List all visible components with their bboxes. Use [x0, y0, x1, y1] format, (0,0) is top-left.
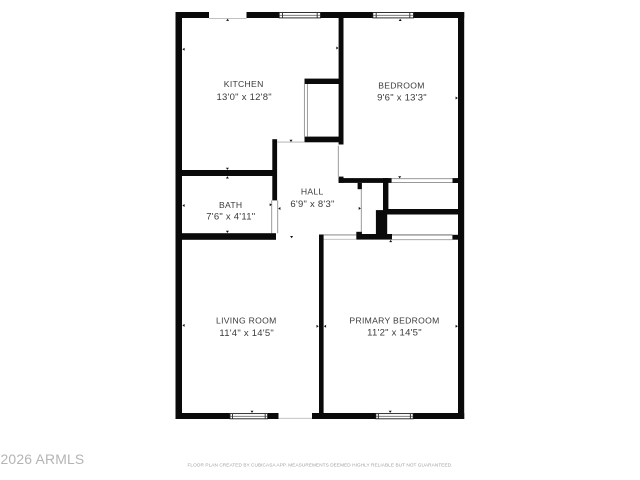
svg-text:KITCHEN: KITCHEN [224, 79, 264, 89]
svg-text:PRIMARY BEDROOM: PRIMARY BEDROOM [349, 315, 439, 325]
svg-text:LIVING ROOM: LIVING ROOM [216, 315, 277, 325]
svg-text:11'4" x 14'5": 11'4" x 14'5" [219, 328, 274, 339]
svg-text:9'6" x 13'3": 9'6" x 13'3" [377, 93, 427, 104]
svg-text:6'9" x 8'3": 6'9" x 8'3" [290, 199, 334, 210]
svg-text:2026 ARMLS: 2026 ARMLS [1, 451, 85, 467]
svg-text:13'0" x 12'8": 13'0" x 12'8" [217, 92, 272, 103]
svg-text:FLOOR PLAN CREATED BY CUBICASA: FLOOR PLAN CREATED BY CUBICASA APP. MEAS… [187, 463, 452, 468]
svg-text:HALL: HALL [301, 187, 324, 197]
svg-text:7'6" x 4'11": 7'6" x 4'11" [206, 212, 255, 223]
svg-text:BATH: BATH [219, 200, 242, 210]
svg-text:BEDROOM: BEDROOM [378, 81, 425, 91]
svg-text:11'2" x 14'5": 11'2" x 14'5" [367, 328, 422, 339]
